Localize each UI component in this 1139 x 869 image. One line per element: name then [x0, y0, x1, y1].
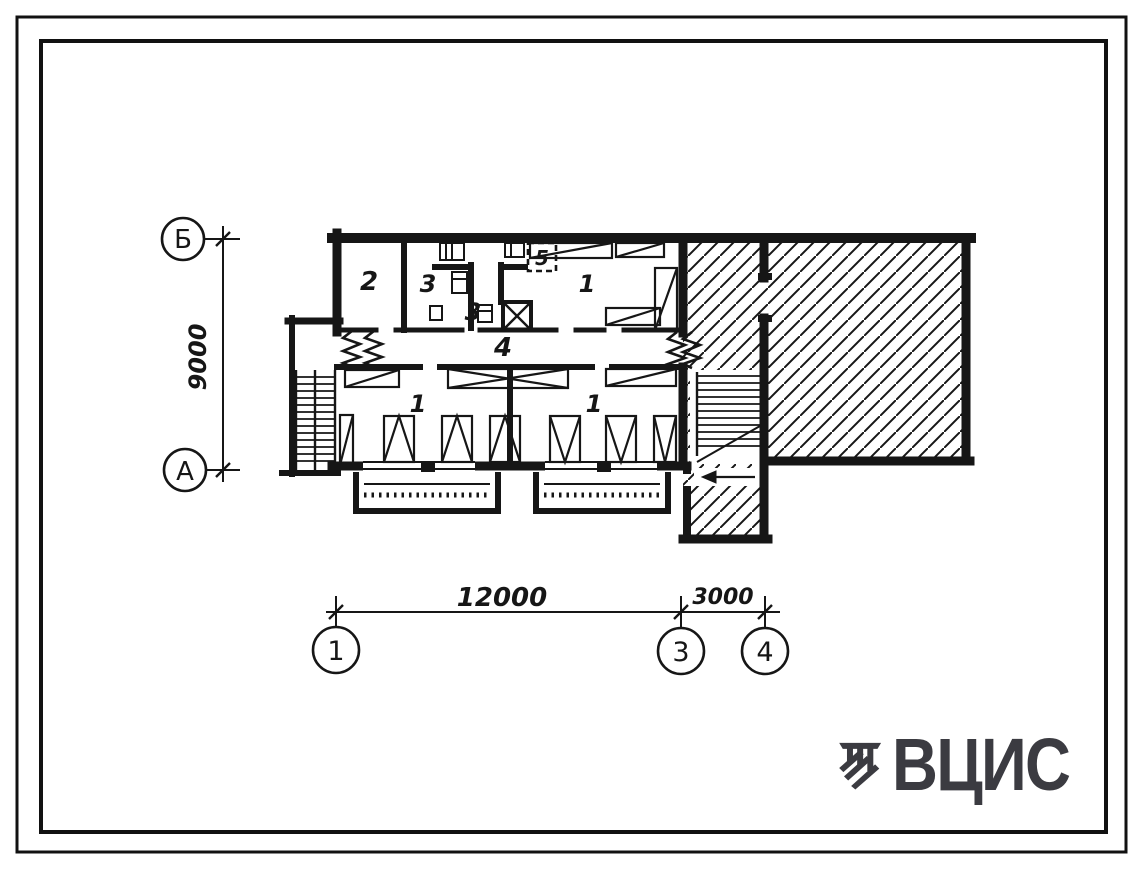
axis-label-a: А — [176, 457, 194, 487]
vcis-logo-text: ВЦИС — [892, 728, 1069, 802]
exterior-staircase — [296, 370, 335, 470]
stair-well — [690, 370, 762, 464]
expansion-joints — [343, 331, 700, 368]
balconies — [356, 472, 668, 511]
drawing-sheet: 2 3 3 5 1 4 1 1 Б А 9000 1 3 4 12000 300… — [0, 0, 1139, 869]
vent-shaft — [503, 302, 531, 330]
axis-label-b: Б — [174, 225, 192, 255]
vcis-logo: ВЦИС — [838, 722, 1098, 808]
vcis-logo-icon — [838, 726, 886, 804]
dim-12000: 12000 — [457, 583, 547, 613]
room-label-1-right: 1 — [586, 390, 603, 418]
vertical-dimension-text: Б А 9000 — [174, 225, 212, 487]
dim-3000: 3000 — [692, 585, 753, 610]
room-label-2: 2 — [360, 267, 378, 297]
room-label-5: 5 — [535, 246, 549, 270]
room-label-3b: 3 — [465, 298, 482, 326]
room-label-1-left: 1 — [410, 390, 427, 418]
room-label-1-top: 1 — [579, 270, 596, 298]
room-label-3a: 3 — [420, 270, 437, 298]
room-label-4: 4 — [493, 333, 512, 363]
dim-9000: 9000 — [184, 324, 212, 391]
axis-label-1: 1 — [327, 636, 344, 667]
balcony-window-units — [384, 416, 676, 462]
horizontal-dimension-text: 1 3 4 12000 3000 — [327, 583, 773, 668]
axis-label-3: 3 — [672, 637, 689, 668]
axis-label-4: 4 — [756, 637, 773, 668]
